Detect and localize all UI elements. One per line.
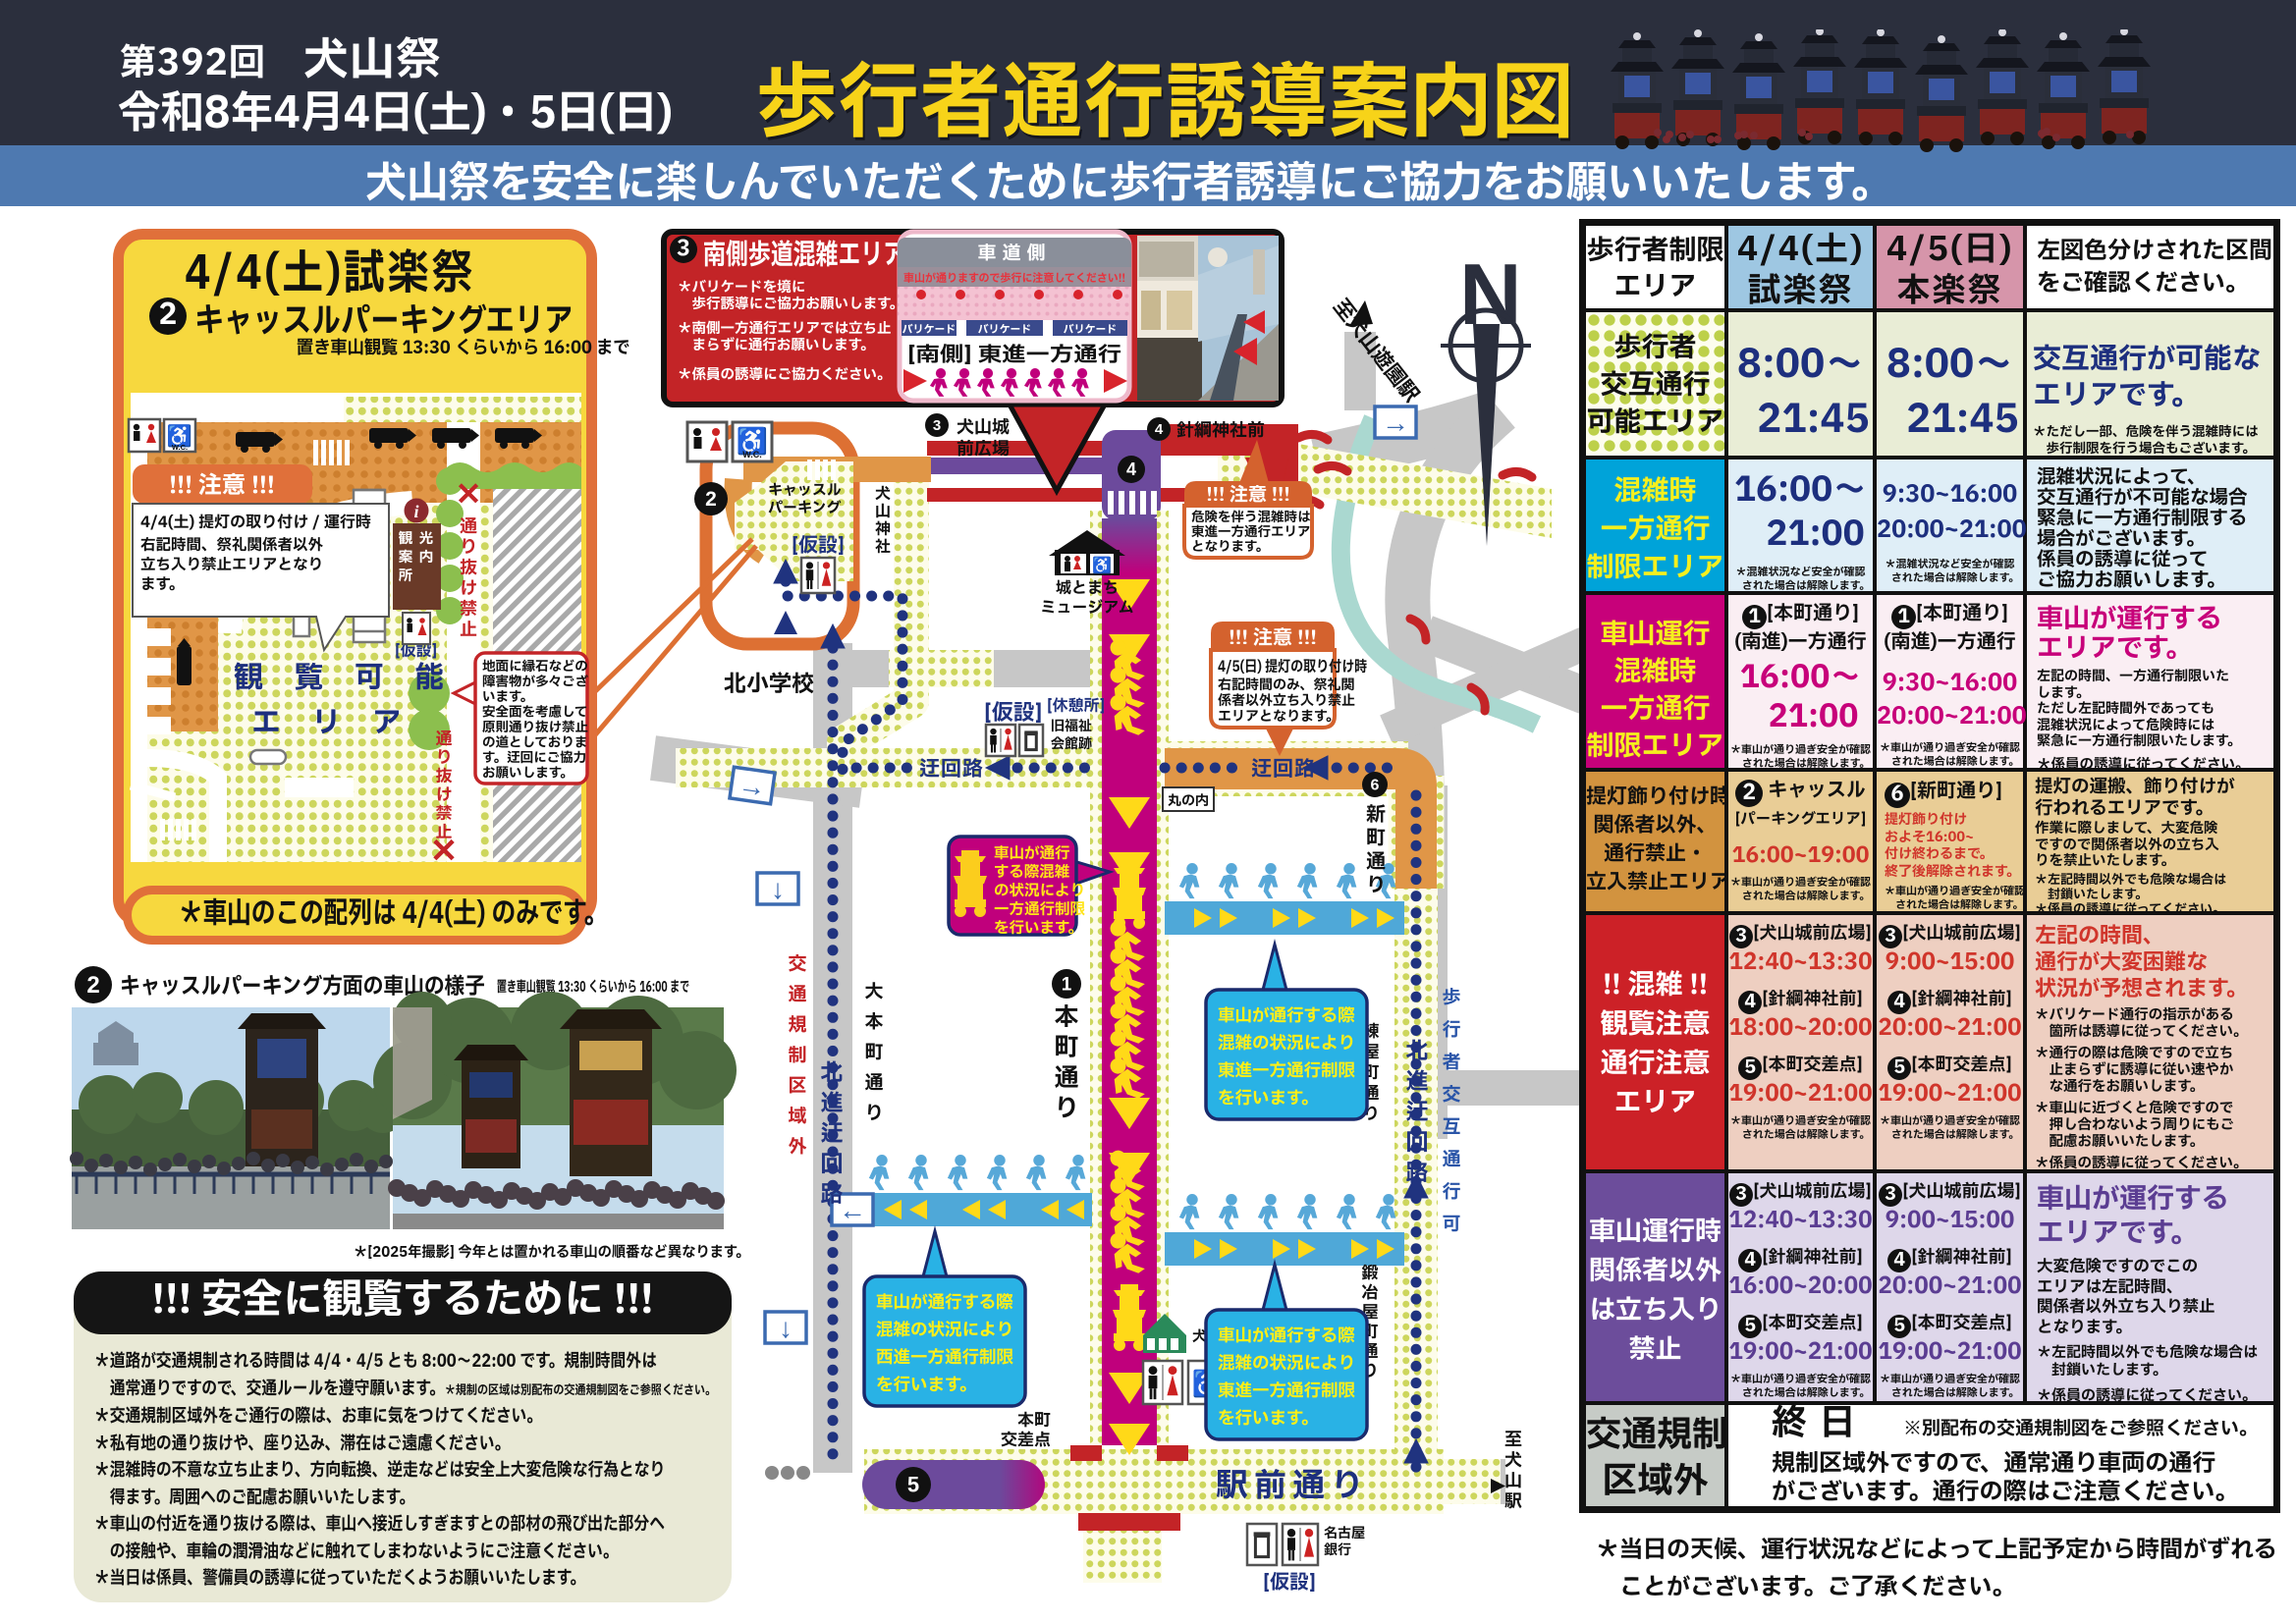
svg-text:2: 2 [86, 972, 99, 999]
svg-text:置き車山観覧 13:30 くらいから 16:00 まで: 置き車山観覧 13:30 くらいから 16:00 まで [497, 976, 689, 999]
